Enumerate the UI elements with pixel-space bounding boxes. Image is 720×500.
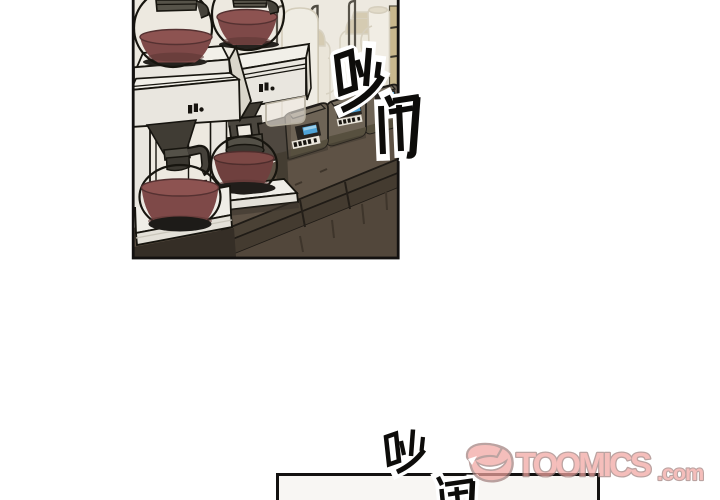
svg-text:.com: .com [657,461,703,485]
svg-text:TOOMICS: TOOMICS [516,446,651,483]
